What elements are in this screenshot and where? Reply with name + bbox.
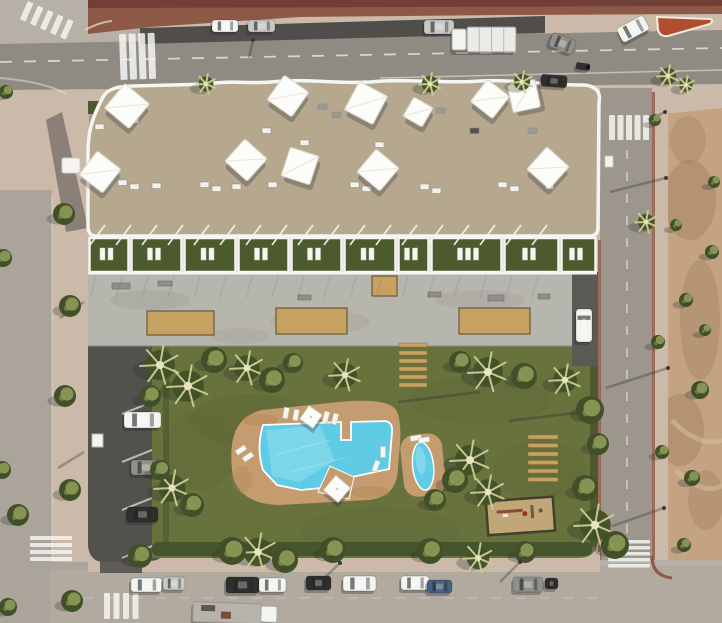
aerial-render	[0, 0, 722, 623]
driveway-car	[574, 309, 592, 345]
roof-lounger	[510, 186, 519, 192]
crosswalk	[609, 115, 649, 140]
lounger	[148, 248, 153, 260]
palm-center	[428, 82, 432, 86]
palm-center	[591, 521, 599, 529]
crosswalk-stripe	[609, 115, 615, 140]
bench	[488, 295, 504, 301]
truck-cab	[261, 606, 278, 623]
roof-lounger	[432, 188, 441, 194]
lounger	[100, 248, 105, 260]
lounger	[316, 248, 321, 260]
rear-window	[267, 22, 270, 31]
bush-tuft	[519, 551, 525, 557]
roof-highlight	[355, 580, 364, 587]
timber-step	[399, 375, 427, 379]
bush-tuft	[429, 499, 435, 505]
windshield	[546, 76, 550, 85]
rear-window	[278, 580, 281, 591]
lounger	[523, 248, 528, 260]
entrance-canopy	[62, 158, 80, 173]
bush-tuft	[708, 252, 712, 256]
lounger	[108, 248, 113, 260]
bush-tuft	[12, 514, 18, 520]
palm-center	[184, 382, 192, 390]
roof-highlight	[258, 23, 266, 28]
planter-bed	[147, 311, 214, 335]
roof-highlight	[435, 24, 443, 30]
roof-highlight	[142, 464, 150, 471]
palm-center	[666, 74, 670, 78]
lounger	[466, 248, 471, 260]
bush-tuft	[607, 544, 614, 551]
timber-step	[399, 359, 427, 363]
rear-window	[324, 578, 327, 589]
windshield	[431, 22, 435, 33]
bush-tuft	[278, 559, 285, 566]
palm-center	[204, 82, 208, 86]
bush-tuft	[58, 213, 64, 219]
palm-center	[466, 456, 474, 464]
rear-window	[366, 578, 370, 590]
rear-window	[445, 582, 448, 592]
crosswalk-stripe	[123, 593, 129, 619]
bush-tuft	[702, 330, 705, 333]
crosswalk-stripe	[30, 543, 72, 547]
roof-lounger	[152, 183, 161, 189]
bush-tuft	[59, 395, 64, 401]
crosswalk-stripe	[626, 115, 632, 140]
lounger	[413, 248, 418, 260]
palm-center	[244, 365, 251, 372]
palm-center	[562, 377, 568, 383]
crosswalk-stripe	[30, 550, 72, 554]
bush-tuft	[185, 504, 191, 510]
roof-highlight	[550, 78, 558, 84]
windshield	[520, 579, 524, 591]
ac-unit	[470, 128, 479, 134]
roof-highlight	[269, 582, 277, 588]
parked-car	[210, 20, 238, 35]
roof-highlight	[138, 511, 147, 518]
windshield	[233, 579, 237, 592]
lounger	[578, 248, 583, 260]
windshield	[134, 509, 138, 521]
palm-center	[254, 548, 262, 556]
bush-tuft	[711, 182, 714, 185]
bush-tuft	[688, 478, 692, 482]
roof-lounger	[350, 182, 359, 188]
windshield	[254, 22, 258, 31]
roof-lounger	[262, 128, 271, 134]
roof-lounger	[268, 182, 277, 188]
lounger	[474, 248, 479, 260]
timber-step	[399, 367, 427, 371]
windshield	[433, 582, 436, 592]
ac-unit	[528, 128, 537, 134]
roof-highlight	[524, 581, 532, 588]
roof-lounger	[200, 182, 209, 188]
planter-bed	[459, 308, 530, 334]
bush-tuft	[517, 375, 524, 382]
roof-highlight	[142, 582, 151, 588]
palm-center	[644, 220, 648, 224]
roof-highlight	[315, 580, 322, 586]
roof-highlight	[411, 580, 419, 586]
palm-center	[684, 83, 688, 87]
crosswalk-stripe	[114, 593, 120, 619]
parked-car	[161, 577, 185, 593]
scene-canvas	[0, 0, 722, 623]
windshield	[548, 580, 550, 588]
timber-step	[399, 383, 427, 387]
rear-window	[178, 579, 180, 589]
parked-car	[125, 507, 158, 525]
lounger	[369, 248, 374, 260]
bush-tuft	[66, 600, 72, 606]
crosswalk-stripe	[104, 593, 110, 619]
parked-car	[304, 576, 331, 593]
cargo	[201, 605, 215, 611]
parked-car	[543, 578, 558, 592]
timber-step	[528, 478, 558, 482]
crosswalk-stripe	[30, 557, 72, 561]
bush-tuft	[224, 550, 231, 557]
roof-lounger	[130, 184, 139, 190]
windshield	[138, 580, 142, 591]
roof-lounger	[300, 140, 309, 146]
sedan	[422, 20, 454, 37]
bush-tuft	[133, 555, 139, 561]
lounger	[308, 248, 313, 260]
windshield	[407, 578, 411, 589]
rear-window	[230, 22, 233, 31]
ac-unit	[436, 108, 445, 114]
bush-tuft	[2, 92, 6, 96]
ac-unit	[332, 112, 341, 118]
bush-tuft	[326, 549, 333, 556]
bush-tuft	[3, 607, 8, 612]
planter-bed	[372, 276, 397, 296]
roof-highlight	[171, 581, 177, 587]
bush-tuft	[64, 489, 70, 495]
garden-terraces	[88, 238, 597, 274]
crosswalk-stripe	[608, 564, 650, 568]
roof-highlight	[221, 23, 228, 28]
rear-window	[554, 580, 555, 588]
roof-lounger	[232, 184, 241, 190]
timber-step	[528, 444, 558, 448]
bush-tuft	[144, 395, 150, 401]
flatbed-truck	[450, 27, 516, 55]
bush-tuft	[64, 305, 70, 311]
timber-step	[528, 469, 558, 473]
bush-tuft	[654, 342, 658, 346]
windshield	[218, 22, 221, 31]
rear-window	[150, 414, 154, 427]
lounger	[570, 248, 575, 260]
parked-car	[122, 412, 161, 431]
lounger	[255, 248, 260, 260]
parked-car	[257, 578, 286, 595]
bush-tuft	[207, 359, 214, 366]
windshield	[350, 578, 354, 590]
left-sidewalk	[52, 190, 88, 562]
crosswalk-stripe	[133, 593, 139, 619]
bush-tuft	[658, 452, 662, 456]
bush-tuft	[682, 300, 686, 304]
windshield	[168, 579, 171, 589]
roof-lounger	[212, 186, 221, 192]
rear-window	[149, 509, 152, 521]
utility-box	[605, 156, 613, 167]
timber-step	[399, 343, 427, 347]
parked-car	[224, 577, 259, 596]
parked-car	[425, 580, 452, 596]
windshield	[312, 578, 315, 589]
bush-tuft	[448, 479, 455, 486]
left-street	[0, 190, 52, 562]
bush-tuft	[673, 225, 676, 228]
rear-window	[249, 579, 253, 592]
palm-center	[342, 372, 348, 378]
bush-tuft	[155, 470, 160, 475]
bush-tuft	[680, 545, 684, 549]
rear-window	[421, 578, 424, 589]
rear-window	[534, 579, 537, 591]
lounger	[201, 248, 206, 260]
bush-tuft	[582, 409, 589, 416]
crosswalk-stripe	[618, 115, 624, 140]
lounger	[209, 248, 214, 260]
windshield	[265, 580, 269, 591]
roof-highlight	[550, 581, 554, 586]
bush-tuft	[454, 361, 460, 367]
playground	[486, 497, 555, 536]
bush-tuft	[265, 379, 272, 386]
rear-window	[445, 22, 448, 33]
palm-center	[520, 80, 524, 84]
roof-lounger	[498, 182, 507, 188]
palm-center	[156, 361, 164, 369]
planter-bed	[276, 308, 347, 334]
roof-lounger	[118, 180, 127, 186]
roof-lounger	[375, 142, 384, 148]
timber-step	[399, 351, 427, 355]
crosswalk-stripe	[635, 115, 641, 140]
palm-center	[484, 368, 492, 376]
windshield	[138, 462, 142, 474]
sedan	[538, 74, 567, 91]
bush-tuft	[695, 390, 700, 395]
lounger	[361, 248, 366, 260]
lounger	[263, 248, 268, 260]
timber-step	[528, 461, 558, 465]
storage-box	[92, 434, 103, 447]
parked-car	[399, 576, 429, 593]
roof-highlight	[137, 416, 147, 423]
parked-car	[246, 20, 275, 35]
pool-lounger	[381, 447, 386, 458]
palm-center	[168, 484, 175, 491]
palm-center	[485, 489, 492, 496]
rear-window	[153, 580, 156, 591]
roof-highlight	[582, 318, 586, 333]
ac-unit	[318, 104, 327, 110]
bush-tuft	[592, 443, 598, 449]
bush-tuft	[578, 487, 585, 494]
lounger	[531, 248, 536, 260]
parked-car	[511, 577, 543, 595]
lounger	[458, 248, 463, 260]
bench	[538, 294, 550, 299]
bench	[112, 283, 130, 289]
bush-tuft	[423, 550, 430, 557]
bench	[298, 295, 311, 300]
roof-highlight	[436, 584, 443, 590]
roof-highlight	[238, 581, 247, 588]
timber-step	[528, 452, 558, 456]
timber-step	[528, 435, 558, 439]
bench	[158, 281, 172, 286]
crosswalk-stripe	[30, 536, 72, 540]
lounger	[156, 248, 161, 260]
lounger	[405, 248, 410, 260]
bush-tuft	[288, 363, 293, 368]
bush-tuft	[652, 120, 655, 123]
parked-car	[129, 578, 162, 595]
cargo	[221, 612, 231, 619]
parked-car	[341, 576, 376, 594]
truck-cab	[452, 29, 466, 50]
roof-lounger	[95, 124, 104, 130]
palm-center	[475, 555, 481, 561]
windshield	[132, 414, 137, 427]
roof-lounger	[420, 184, 429, 190]
